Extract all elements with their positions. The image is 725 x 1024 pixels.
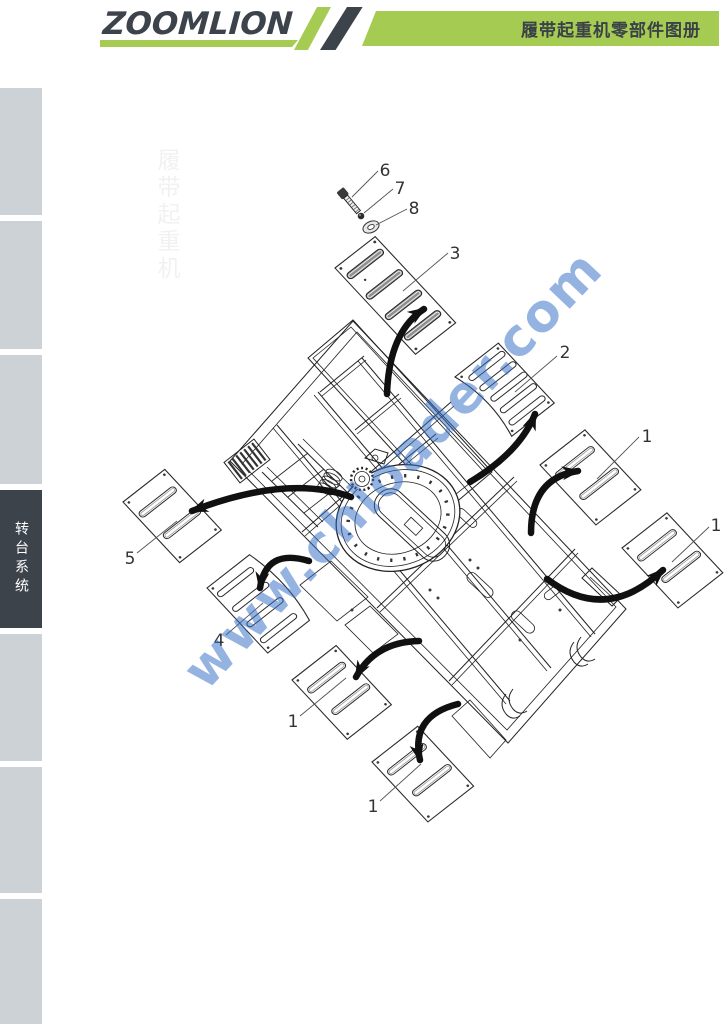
callout-7: 7: [395, 179, 406, 199]
washer-item-8: [361, 218, 381, 235]
catalog-page: ZOOMLION 履带起重机零部件图册 转台系统 履带起重机: [0, 0, 725, 1024]
panel-1c: [292, 646, 391, 740]
callout-5: 5: [125, 549, 136, 569]
callout-3: 3: [450, 244, 461, 264]
nut-item-7: [358, 213, 365, 220]
step-grate: [224, 439, 270, 483]
callout-1b: 1: [711, 516, 722, 536]
arrow-to-panel-1c: [356, 641, 419, 677]
callout-1c: 1: [288, 712, 299, 732]
mount-hooks: [502, 637, 595, 718]
callout-6: 6: [380, 161, 391, 181]
callout-1a: 1: [642, 427, 653, 447]
callout-8: 8: [409, 199, 420, 219]
callout-1d: 1: [368, 797, 379, 817]
panel-1d: [372, 726, 474, 822]
callout-2: 2: [560, 343, 571, 363]
panel-1b: [622, 513, 723, 608]
exploded-diagram: 6 7 8 3 2 1 1 5 4 1 1 www.chloader.com: [0, 0, 725, 1024]
panel-5: [123, 469, 221, 562]
